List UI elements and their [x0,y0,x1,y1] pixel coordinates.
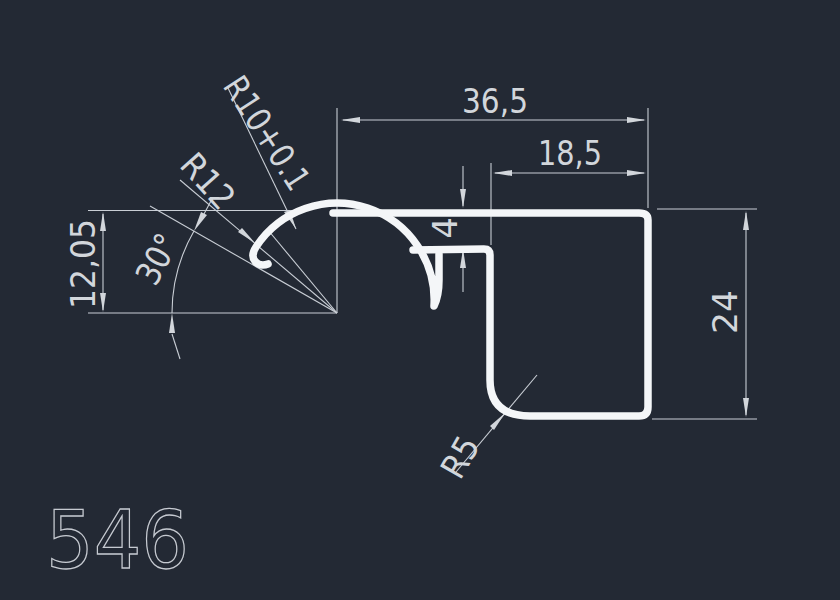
dim-label-36-5: 36,5 [462,81,528,121]
dimension-30deg: 30° [127,199,337,359]
cad-drawing-canvas: 12,05 36,5 18,5 [0,0,840,600]
dim-label-r5: R5 [432,429,488,485]
dim-label-4: 4 [425,217,465,239]
dim-label-r12: R12 [172,145,243,218]
part-number: 546 [46,494,189,587]
dimension-lines: 12,05 36,5 18,5 [63,68,757,485]
dim-label-12-05: 12,05 [63,219,103,309]
dimension-r5: R5 [432,375,537,485]
dim-label-18-5: 18,5 [538,133,602,173]
dimension-12-05: 12,05 [63,211,337,314]
cad-drawing: 12,05 36,5 18,5 [0,0,840,600]
dim-label-30deg: 30° [127,227,187,292]
dimension-24: 24 [652,209,757,419]
dim-label-24: 24 [705,290,745,334]
profile-hook-arc [253,203,439,306]
dimension-18-5: 18,5 [491,133,646,245]
